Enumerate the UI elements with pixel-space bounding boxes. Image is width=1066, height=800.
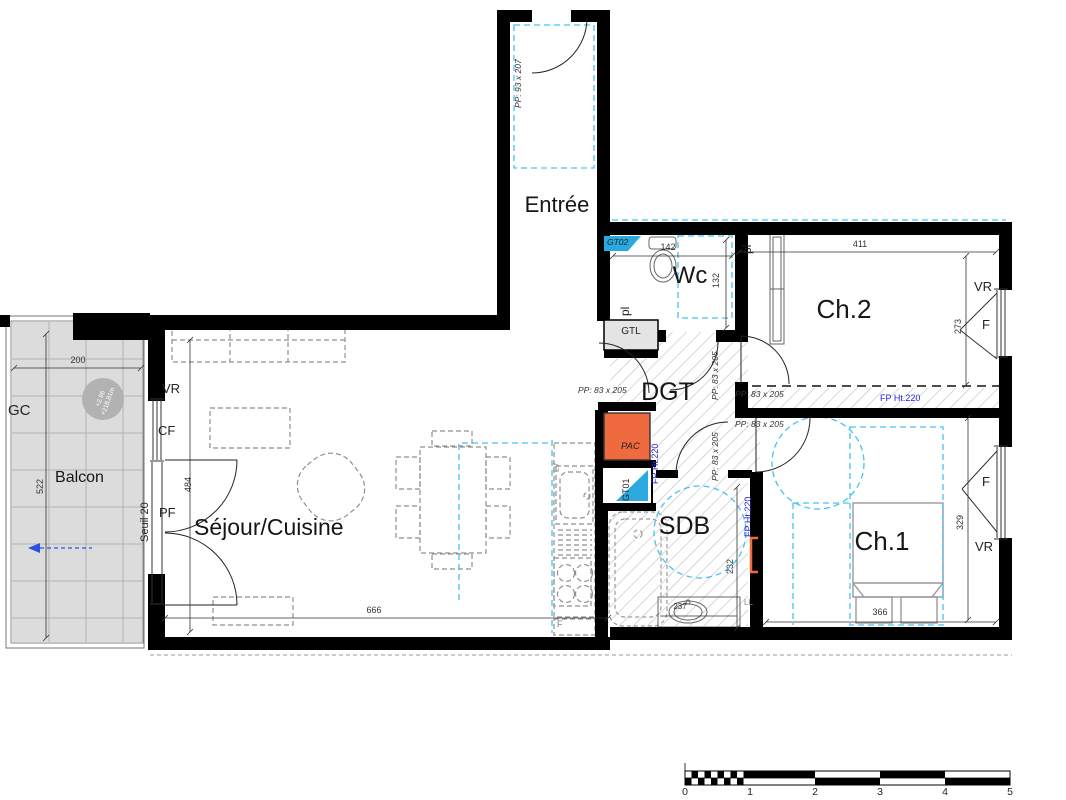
- shutter-label-ch1: VR: [975, 540, 993, 553]
- dim-ch2-width: 411: [838, 240, 882, 249]
- dim-balcony-length: 522: [36, 479, 45, 494]
- fridge-label: F: [557, 620, 563, 629]
- ceiling-label-strip: FP Ht.220: [880, 394, 920, 403]
- window-label-ch2: F: [982, 318, 990, 331]
- dim-wc-width: 142: [648, 243, 688, 252]
- french-door-label: PF: [159, 506, 176, 519]
- door-label-sdb: PP: 83 x 205: [711, 432, 720, 481]
- dim-balcony-width: 200: [58, 356, 98, 365]
- dim-sejour-width: 666: [352, 606, 396, 615]
- room-label-dgt: DGT: [625, 380, 710, 405]
- dim-wc-depth: 132: [712, 273, 721, 288]
- gt02-label: GT02: [607, 238, 628, 247]
- scale-tick-0: 0: [673, 787, 697, 798]
- dim-sdb-depth: 232: [726, 559, 735, 574]
- scale-tick-1: 1: [738, 787, 762, 798]
- dim-sdb-width: 237: [666, 603, 694, 611]
- scale-bar: [685, 763, 1010, 785]
- dim-ch1-width: 366: [858, 608, 902, 617]
- door-label-ch1: PP: 83 x 205: [735, 420, 784, 429]
- scale-tick-3: 3: [868, 787, 892, 798]
- closet-label-ch2: pl: [741, 245, 753, 254]
- door-label-sejour: PP: 83 x 205: [578, 386, 627, 395]
- scale-tick-4: 4: [933, 787, 957, 798]
- shutter-label-ch2: VR: [974, 280, 992, 293]
- room-label-ch2: Ch.2: [800, 296, 888, 322]
- fixed-window-label: CF: [158, 424, 175, 437]
- dim-ch1-depth: 329: [956, 515, 965, 530]
- room-label-entree: Entrée: [511, 194, 603, 216]
- scale-tick-2: 2: [803, 787, 827, 798]
- closet-label-wc: pl: [619, 307, 631, 316]
- washer-label: LL: [744, 599, 753, 607]
- room-label-balcon: Balcon: [42, 470, 117, 486]
- ceiling-label-sdb: FP Ht.220: [744, 497, 753, 537]
- pac-box: [604, 413, 650, 460]
- door-label-wc: PP: 83 x 205: [711, 351, 720, 400]
- room-label-sdb: SDB: [642, 514, 727, 539]
- door-label-entry: PP: 93 x 207: [514, 59, 523, 108]
- room-label-sejour: Séjour/Cuisine: [194, 516, 344, 539]
- gutter-label: GC: [8, 403, 31, 418]
- ceiling-label-dgt: FP Ht.220: [651, 444, 660, 484]
- dim-ch2-depth: 273: [954, 319, 963, 334]
- dishwasher-label: LV: [553, 463, 561, 472]
- room-label-ch1: Ch.1: [838, 528, 926, 554]
- dim-bay-height: 484: [184, 477, 193, 492]
- shutter-label-sejour: VR: [162, 382, 180, 395]
- door-label-ch2: PP: 83 x 205: [735, 390, 784, 399]
- bed: [853, 503, 943, 623]
- windows: [150, 289, 1008, 604]
- gt01-label: GT01: [622, 478, 631, 501]
- threshold-label: Seuil 20: [140, 502, 151, 542]
- floor-plan: Entrée Wc Ch.2 DGT Balcon Séjour/Cuisine…: [0, 0, 1066, 800]
- gtl-label: GTL: [606, 327, 656, 337]
- window-label-ch1: F: [982, 475, 990, 488]
- pac-label: PAC: [621, 442, 640, 452]
- scale-tick-5: 5: [998, 787, 1022, 798]
